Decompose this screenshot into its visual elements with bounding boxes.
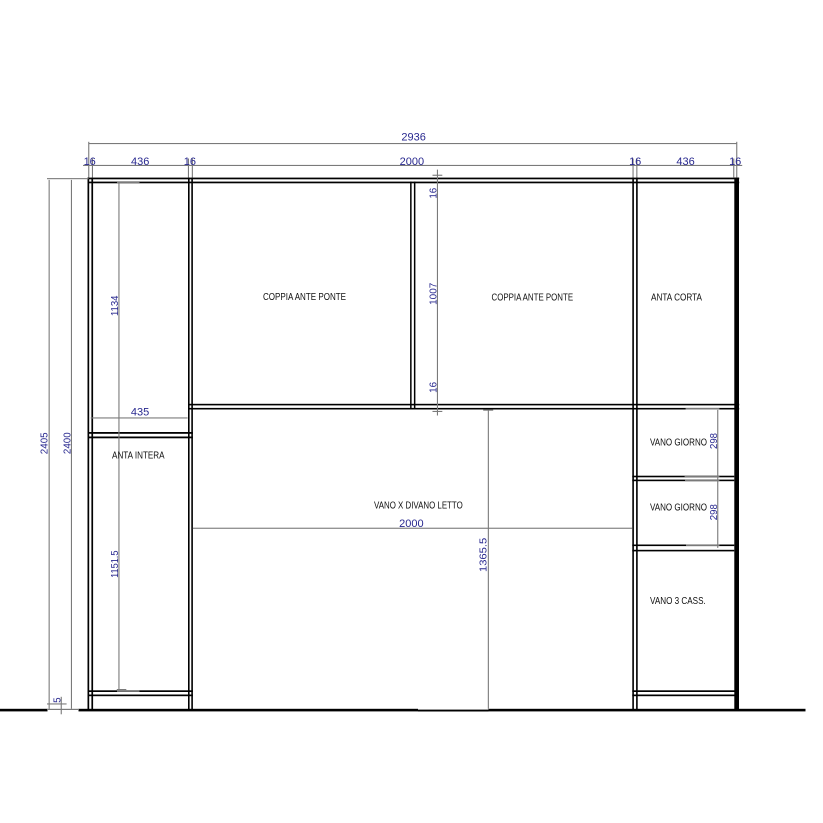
svg-text:16: 16: [629, 156, 641, 168]
svg-text:298: 298: [709, 432, 720, 449]
svg-text:2400: 2400: [62, 432, 73, 454]
svg-text:1007: 1007: [428, 283, 439, 305]
svg-text:ANTA INTERA: ANTA INTERA: [112, 450, 165, 461]
svg-text:2000: 2000: [399, 518, 423, 530]
svg-text:VANO GIORNO: VANO GIORNO: [650, 438, 707, 449]
svg-text:VANO X DIVANO LETTO: VANO X DIVANO LETTO: [374, 500, 463, 511]
svg-text:COPPIA ANTE PONTE: COPPIA ANTE PONTE: [263, 292, 346, 303]
svg-text:1151.5: 1151.5: [110, 550, 121, 578]
svg-text:ANTA CORTA: ANTA CORTA: [651, 292, 702, 303]
svg-text:VANO 3 CASS.: VANO 3 CASS.: [650, 596, 706, 607]
svg-text:16: 16: [428, 381, 439, 392]
svg-text:2405: 2405: [40, 432, 51, 454]
svg-text:436: 436: [676, 156, 694, 168]
svg-text:16: 16: [428, 187, 439, 198]
svg-text:5: 5: [52, 697, 63, 703]
svg-text:436: 436: [131, 156, 149, 168]
svg-text:298: 298: [709, 504, 720, 521]
svg-text:VANO GIORNO: VANO GIORNO: [650, 503, 707, 514]
svg-text:COPPIA ANTE PONTE: COPPIA ANTE PONTE: [492, 292, 574, 303]
svg-text:1365.5: 1365.5: [478, 537, 489, 572]
svg-text:2936: 2936: [401, 132, 425, 144]
svg-text:16: 16: [729, 156, 741, 168]
svg-text:2000: 2000: [400, 156, 424, 168]
svg-text:16: 16: [84, 156, 96, 168]
svg-text:1134: 1134: [110, 295, 121, 316]
svg-text:16: 16: [184, 156, 196, 168]
svg-text:435: 435: [131, 407, 149, 419]
